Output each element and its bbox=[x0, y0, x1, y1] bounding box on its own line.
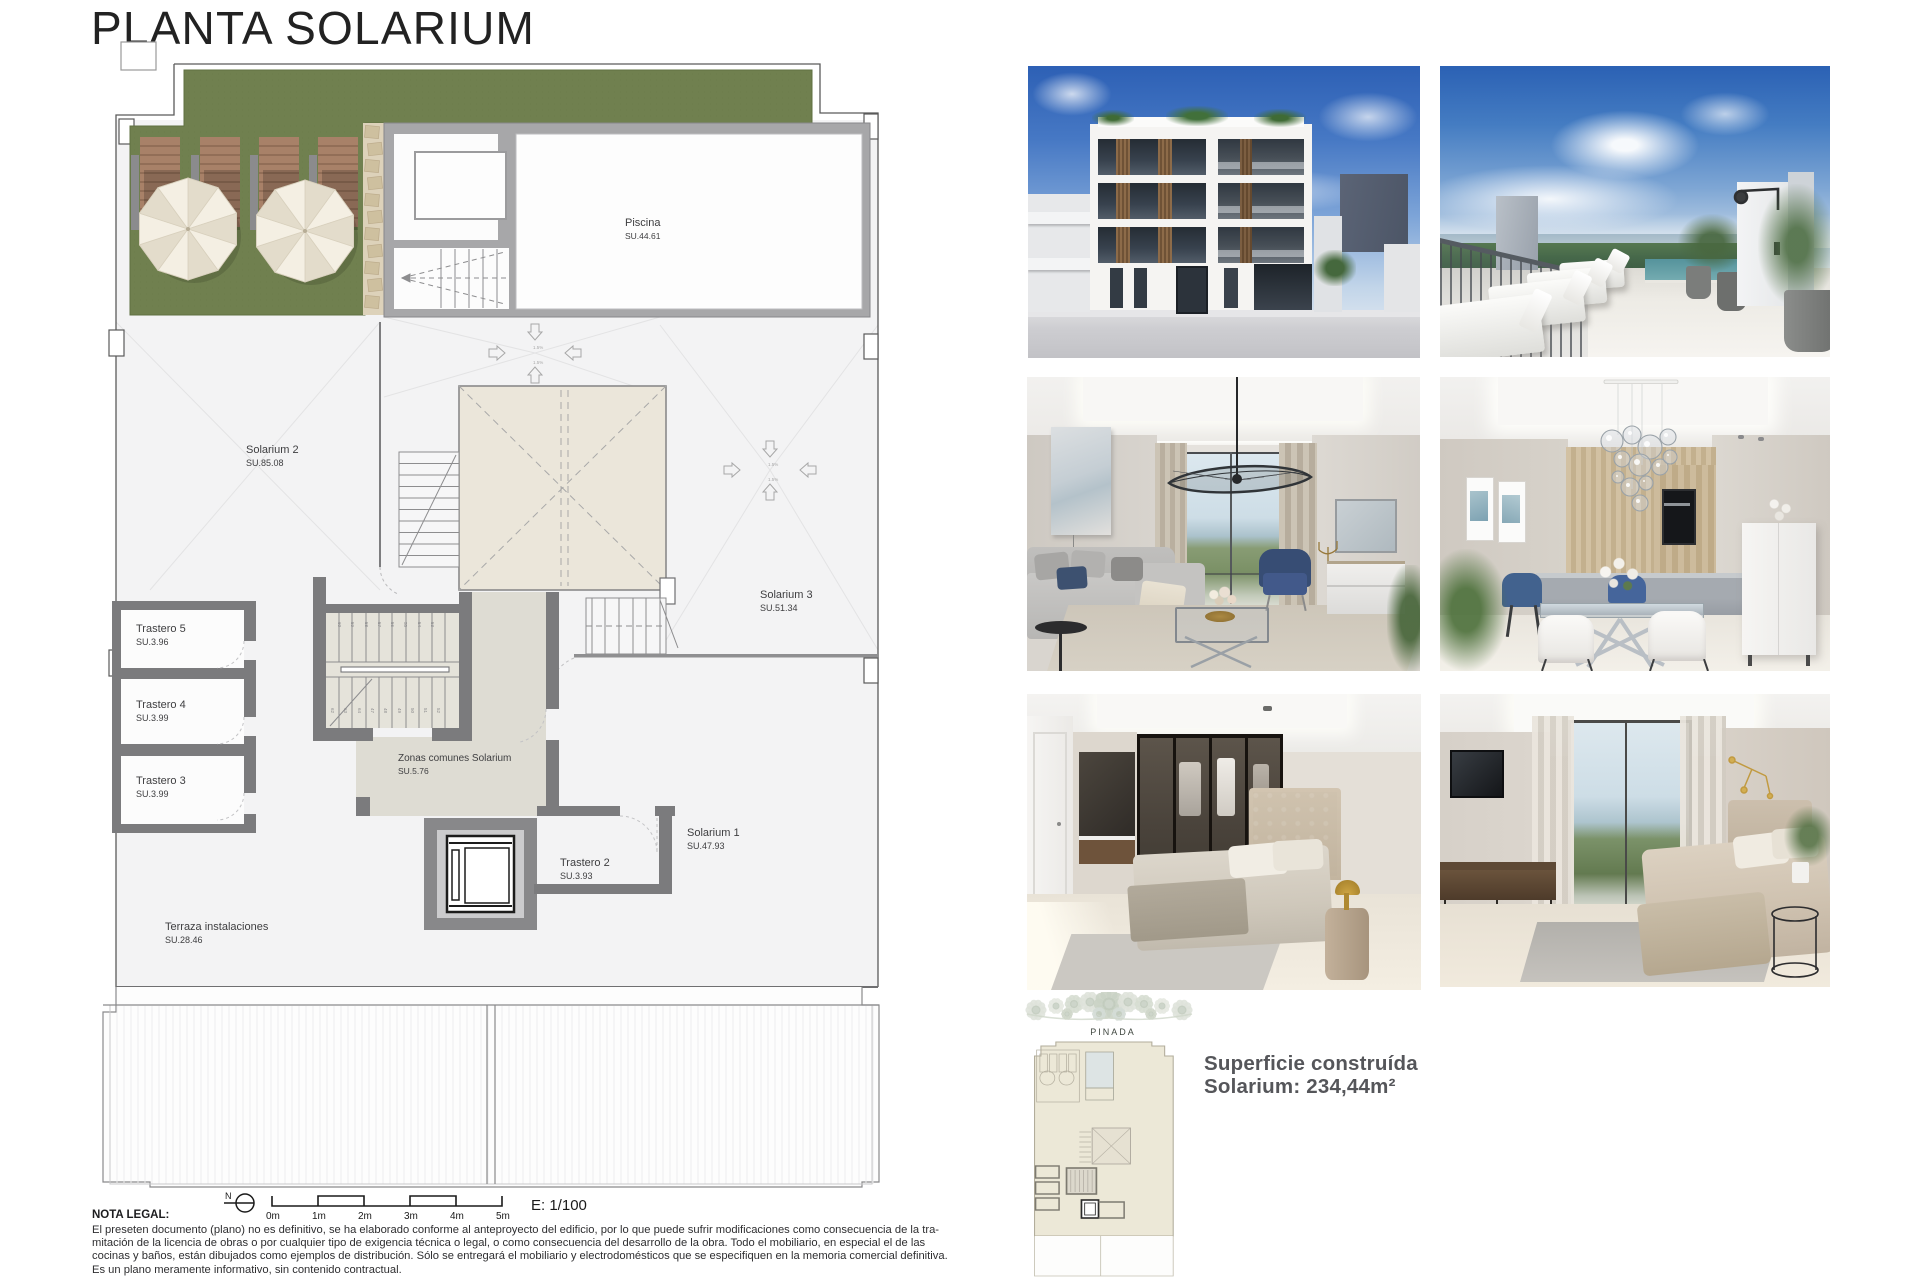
svg-text:62: 62 bbox=[330, 708, 335, 714]
svg-text:SU.47.93: SU.47.93 bbox=[687, 841, 725, 851]
svg-text:Solarium 2: Solarium 2 bbox=[246, 444, 299, 456]
svg-text:Trastero 2: Trastero 2 bbox=[560, 857, 610, 869]
svg-text:SU.3.96: SU.3.96 bbox=[136, 637, 169, 647]
svg-text:SU.85.08: SU.85.08 bbox=[246, 458, 284, 468]
svg-text:58: 58 bbox=[364, 622, 369, 628]
svg-text:59: 59 bbox=[350, 622, 355, 628]
svg-text:56: 56 bbox=[390, 622, 395, 628]
svg-text:57: 57 bbox=[377, 622, 382, 628]
svg-text:Terraza instalaciones: Terraza instalaciones bbox=[165, 921, 269, 933]
svg-text:2m: 2m bbox=[358, 1211, 372, 1222]
svg-text:5m: 5m bbox=[496, 1211, 510, 1222]
svg-text:1.5%: 1.5% bbox=[533, 360, 543, 365]
svg-text:1.5%: 1.5% bbox=[768, 477, 778, 482]
svg-text:Trastero 5: Trastero 5 bbox=[136, 623, 186, 635]
svg-text:0m: 0m bbox=[266, 1211, 280, 1222]
svg-text:55: 55 bbox=[403, 622, 408, 628]
svg-text:63: 63 bbox=[343, 708, 348, 714]
svg-text:SU.5.76: SU.5.76 bbox=[398, 766, 429, 776]
svg-text:1m: 1m bbox=[312, 1211, 326, 1222]
svg-text:54: 54 bbox=[417, 622, 422, 628]
svg-text:53: 53 bbox=[430, 622, 435, 628]
svg-text:60: 60 bbox=[337, 622, 342, 628]
svg-text:SU.3.99: SU.3.99 bbox=[136, 713, 169, 723]
svg-text:Trastero 4: Trastero 4 bbox=[136, 699, 186, 711]
svg-text:SU.3.93: SU.3.93 bbox=[560, 871, 593, 881]
svg-text:64: 64 bbox=[357, 708, 362, 714]
svg-text:SU.28.46: SU.28.46 bbox=[165, 935, 203, 945]
svg-text:SU.3.99: SU.3.99 bbox=[136, 789, 169, 799]
svg-text:48: 48 bbox=[383, 708, 388, 714]
svg-text:E: 1/100: E: 1/100 bbox=[531, 1197, 587, 1214]
svg-text:Solarium 3: Solarium 3 bbox=[760, 589, 813, 601]
svg-text:Zonas comunes Solarium: Zonas comunes Solarium bbox=[398, 753, 511, 764]
svg-text:52: 52 bbox=[436, 708, 441, 714]
svg-text:Piscina: Piscina bbox=[625, 217, 661, 229]
svg-text:Trastero 3: Trastero 3 bbox=[136, 775, 186, 787]
svg-text:SU.44.61: SU.44.61 bbox=[625, 231, 661, 241]
svg-text:SU.51.34: SU.51.34 bbox=[760, 603, 798, 613]
svg-text:N: N bbox=[225, 1191, 232, 1201]
svg-text:1.5%: 1.5% bbox=[768, 462, 778, 467]
svg-text:4m: 4m bbox=[450, 1211, 464, 1222]
svg-text:51: 51 bbox=[423, 708, 428, 714]
svg-text:Solarium 1: Solarium 1 bbox=[687, 827, 740, 839]
svg-text:49: 49 bbox=[397, 708, 402, 714]
svg-text:3m: 3m bbox=[404, 1211, 418, 1222]
svg-text:47: 47 bbox=[370, 708, 375, 714]
svg-text:50: 50 bbox=[410, 708, 415, 714]
svg-text:1.5%: 1.5% bbox=[533, 345, 543, 350]
